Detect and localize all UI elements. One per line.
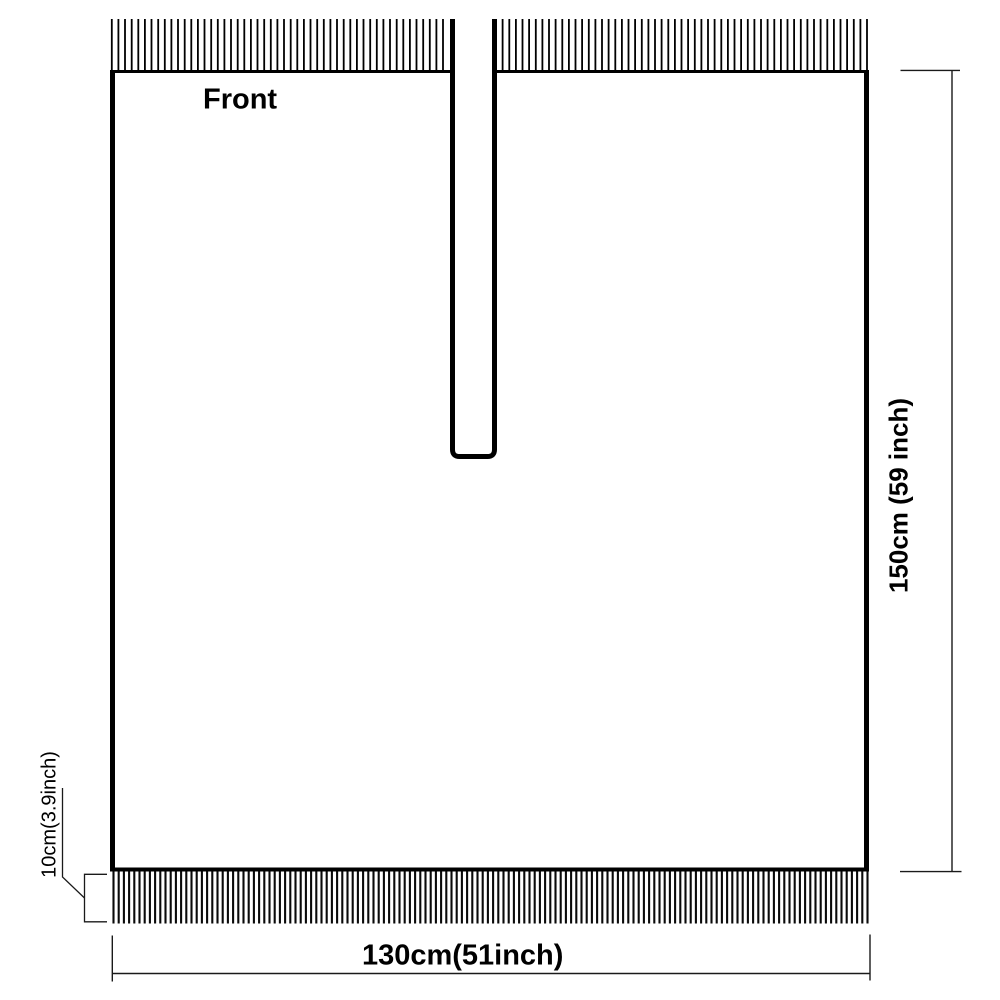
svg-text:10cm(3.9inch): 10cm(3.9inch) (39, 751, 61, 878)
svg-text:150cm (59 inch): 150cm (59 inch) (884, 398, 914, 593)
svg-text:Front: Front (203, 84, 277, 116)
svg-text:130cm(51inch): 130cm(51inch) (362, 940, 564, 972)
